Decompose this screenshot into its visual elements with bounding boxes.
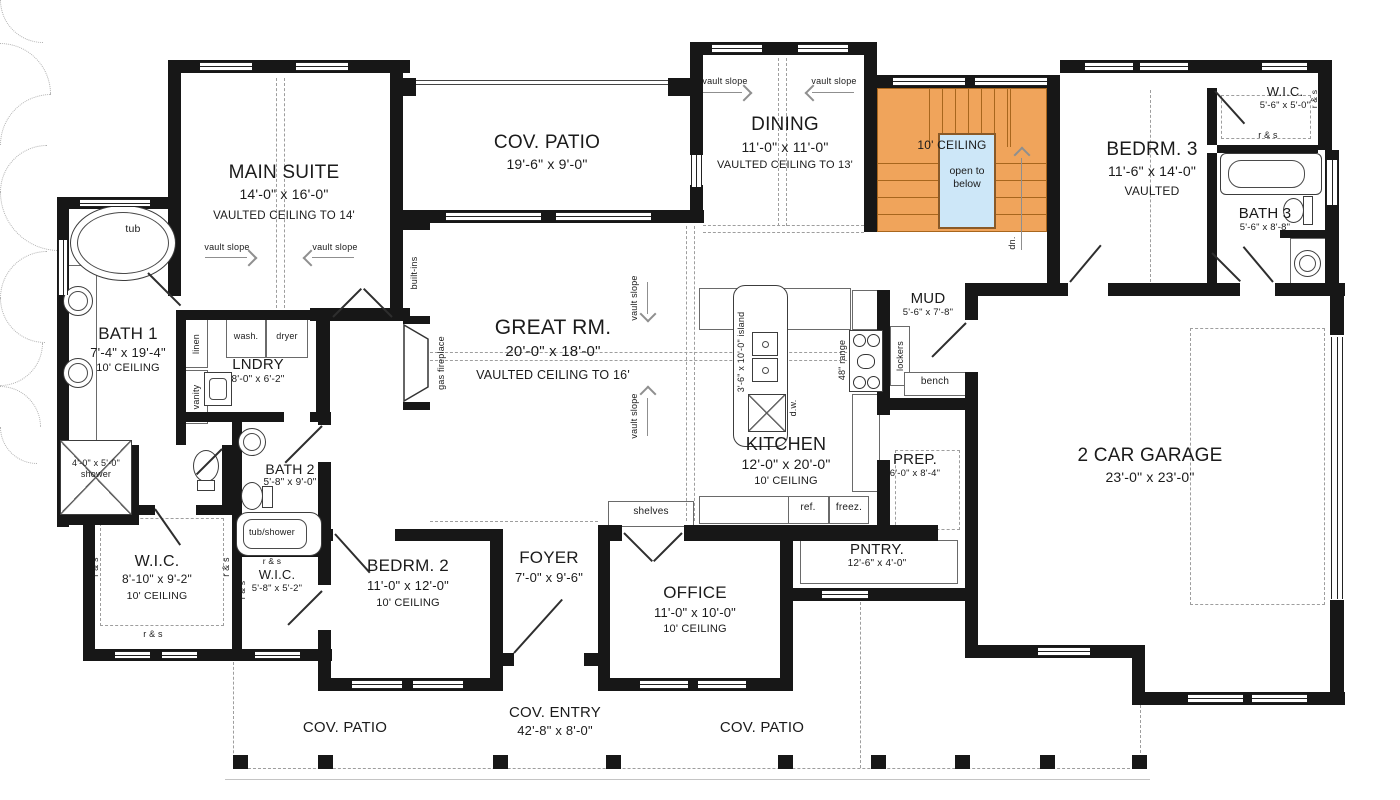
arrow-head <box>805 85 822 102</box>
dashed-line <box>415 360 867 361</box>
wall-segment <box>690 185 703 210</box>
wall-segment <box>864 75 877 232</box>
range <box>849 330 883 392</box>
vault-slope-label: vault slope <box>629 275 639 320</box>
wall-segment <box>176 412 284 422</box>
room-dims-kitchen: 12'-0" x 20'-0" <box>741 457 830 472</box>
arrow-head <box>640 306 657 323</box>
porch-post <box>668 78 690 96</box>
window <box>255 651 300 659</box>
room-label-cov-patio-br: COV. PATIO <box>720 720 804 736</box>
wall-segment <box>598 525 622 541</box>
room-dims-bath2: 5'-8" x 9'-0" <box>264 478 317 489</box>
lockers-label: lockers <box>895 341 905 371</box>
dryer-label: dryer <box>276 332 298 342</box>
arrow-line <box>647 398 648 436</box>
room-dims-pntry: 12'-6" x 4'-0" <box>848 559 907 570</box>
room-note-kitchen: 10' CEILING <box>754 476 818 488</box>
wall-segment <box>780 541 793 678</box>
porch-post <box>871 755 886 769</box>
window <box>446 212 541 221</box>
room-dims-bedrm3: 11'-6" x 14'-0" <box>1108 164 1196 179</box>
wall-segment <box>598 541 610 678</box>
dashed-line <box>233 768 1140 769</box>
room-label-wic3: W.I.C. <box>1267 85 1304 99</box>
gas-fireplace-box <box>403 324 429 402</box>
vanity-label: vanity <box>191 385 201 410</box>
toilet-tank <box>1303 196 1313 225</box>
toilet-tank <box>197 480 215 491</box>
window <box>1038 647 1090 656</box>
door-swing-arc <box>0 94 51 145</box>
door-leaf <box>334 533 370 573</box>
door-swing-arc <box>0 298 45 343</box>
vault-slope-label: vault slope <box>312 243 357 253</box>
dashed-line <box>703 232 864 233</box>
window <box>413 680 463 689</box>
shower-label: shower <box>81 470 111 480</box>
room-dims-main-suite: 14'-0" x 16'-0" <box>239 187 328 202</box>
door-swing-arc <box>0 386 41 427</box>
window <box>162 651 197 659</box>
freez-label: freez. <box>836 503 862 514</box>
room-label-cov-patio-bl: COV. PATIO <box>303 720 387 736</box>
window <box>698 680 746 689</box>
wall-segment <box>83 525 95 661</box>
laundry-sink <box>204 372 232 406</box>
wall-segment <box>965 283 978 320</box>
cabinet-counter <box>852 394 880 492</box>
room-label-mud: MUD <box>911 291 946 307</box>
room-label-kitchen: KITCHEN <box>746 435 826 454</box>
dashed-line <box>415 352 867 353</box>
window <box>798 44 848 53</box>
window <box>1085 62 1133 71</box>
sink <box>63 358 93 388</box>
wall-segment <box>318 412 331 425</box>
window <box>115 651 150 659</box>
door-swing-arc <box>0 343 43 386</box>
stairs-ceiling-label: 10' CEILING <box>917 139 986 152</box>
porch-post <box>1040 755 1055 769</box>
wall-segment <box>196 505 232 515</box>
room-label-bedrm3: BEDRM. 3 <box>1106 140 1197 161</box>
bench-label: bench <box>921 377 949 388</box>
door-leaf <box>653 532 683 562</box>
door-leaf <box>1243 246 1274 283</box>
window <box>58 240 68 295</box>
room-dims-wic3: 5'-6" x 5'-0" <box>1260 101 1310 111</box>
cabinet-counter <box>852 290 880 330</box>
rs-label: r & s <box>221 557 231 577</box>
room-note-bath1: 10' CEILING <box>96 363 160 375</box>
porch-slab-line <box>225 779 1150 780</box>
wall-segment <box>139 505 155 515</box>
wall-segment <box>316 310 330 422</box>
room-note-wic1: 10' CEILING <box>127 591 188 602</box>
room-dims-wic1: 8'-10" x 9'-2" <box>122 573 192 586</box>
wall-segment <box>176 318 186 445</box>
door-swing-arc <box>0 145 47 192</box>
window <box>80 199 150 207</box>
window <box>296 62 348 71</box>
rs-label: r & s <box>237 581 247 599</box>
room-label-great-rm: GREAT RM. <box>495 317 612 340</box>
arrow-head <box>736 85 753 102</box>
room-note-office: 10' CEILING <box>663 624 727 636</box>
bathtub <box>70 205 176 281</box>
wall-segment <box>1330 290 1344 335</box>
room-dims-cov-entry: 42'-8" x 8'-0" <box>517 724 593 738</box>
wall-segment <box>877 460 890 525</box>
sink <box>238 428 266 456</box>
island-sink <box>752 358 778 382</box>
room-label-cov-entry: COV. ENTRY <box>509 705 601 721</box>
window <box>556 212 651 221</box>
room-dims-great-rm: 20'-0" x 18'-0" <box>505 344 600 360</box>
wall-segment <box>1318 60 1332 150</box>
window <box>640 680 688 689</box>
room-dims-bath1: 7'-4" x 19'-4" <box>90 346 166 360</box>
wall-segment <box>222 445 232 513</box>
window <box>1326 160 1338 205</box>
window <box>200 62 252 71</box>
island-label: 3'-6" x 10'-0" island <box>736 312 746 393</box>
window <box>352 680 402 689</box>
arrow-head <box>640 386 657 403</box>
window <box>1188 694 1243 703</box>
porch-post <box>955 755 970 769</box>
wall-segment <box>318 678 503 691</box>
cabinet-counter <box>699 496 789 524</box>
room-label-bedrm2: BEDRM. 2 <box>367 557 449 575</box>
rs-label: r & s <box>1258 131 1278 141</box>
vault-slope-label: vault slope <box>629 393 639 438</box>
vault-slope-label: vault slope <box>204 243 249 253</box>
door-leaf <box>623 532 653 562</box>
ref-label: ref. <box>800 503 815 514</box>
wash-label: wash. <box>234 332 259 342</box>
room-label-wic1: W.I.C. <box>135 553 180 570</box>
rs-label: r & s <box>1309 90 1319 108</box>
room-label-bath3: BATH 3 <box>1239 206 1292 222</box>
wall-segment <box>965 283 1068 296</box>
dashed-line <box>860 602 861 768</box>
wall-segment <box>690 55 703 155</box>
room-dims-bedrm2: 11'-0" x 12'-0" <box>367 579 449 593</box>
porch-post <box>394 78 416 96</box>
room-dims-lndry: 8'-0" x 6'-2" <box>232 375 285 386</box>
door-swing-arc <box>0 43 51 94</box>
wall-segment <box>395 529 503 541</box>
wall-segment <box>1047 75 1060 283</box>
porch-post <box>606 755 621 769</box>
window <box>1140 62 1188 71</box>
porch-post <box>493 755 508 769</box>
door-swing-arc <box>0 0 43 43</box>
window <box>1331 337 1343 599</box>
wall-segment <box>232 557 242 649</box>
door-leaf <box>285 425 323 463</box>
wall-segment <box>1217 145 1318 153</box>
porch-post <box>318 755 333 769</box>
built-ins-label: built-ins <box>409 257 419 290</box>
vault-slope-label: vault slope <box>811 77 856 87</box>
wall-segment <box>490 653 514 666</box>
wall-segment <box>1207 88 1217 145</box>
dashed-line <box>694 226 695 521</box>
vault-slope-label: vault slope <box>702 77 747 87</box>
room-dims-bath3: 5'-6" x 8'-8" <box>1240 223 1290 233</box>
room-label-bath1: BATH 1 <box>98 325 157 343</box>
window <box>712 44 762 53</box>
room-note-great-rm: VAULTED CEILING TO 16' <box>476 369 630 383</box>
linen-label: linen <box>191 334 201 354</box>
room-dims-office: 11'-0" x 10'-0" <box>654 606 736 620</box>
porch-post <box>1132 755 1147 769</box>
rs-label: r & s <box>143 630 163 640</box>
dashed-line <box>233 662 234 768</box>
door-swing-arc <box>0 251 47 298</box>
wall-segment <box>864 42 877 75</box>
porch-post <box>233 755 248 769</box>
wall-segment <box>684 525 938 541</box>
wall-segment <box>176 310 318 320</box>
room-dims-garage: 23'-0" x 23'-0" <box>1105 470 1194 485</box>
sink <box>1294 250 1321 277</box>
room-label-office: OFFICE <box>663 584 727 602</box>
floor-plan: open to below MAIN SUITE 14'-0" x 16'-0"… <box>0 0 1400 800</box>
dishwasher <box>748 394 786 432</box>
room-dims-mud: 5'-6" x 7'-8" <box>903 308 953 318</box>
wall-segment <box>490 529 503 691</box>
wall-segment <box>403 222 430 230</box>
room-note-bedrm2: 10' CEILING <box>376 598 440 610</box>
stairs-dn-label: dn. <box>1007 236 1017 249</box>
wall-segment <box>1108 283 1240 296</box>
room-note-bedrm3: VAULTED <box>1125 185 1180 198</box>
room-dims-dining: 11'-0" x 11'-0" <box>741 140 828 155</box>
window <box>975 77 1047 86</box>
wall-segment <box>1207 153 1217 285</box>
wall-segment <box>965 372 978 658</box>
room-label-main-suite: MAIN SUITE <box>229 163 340 184</box>
toilet-tank <box>262 486 273 508</box>
gas-fireplace-label: gas fireplace <box>436 336 446 390</box>
room-label-lndry: LNDRY <box>232 357 284 373</box>
wall-segment <box>598 678 793 691</box>
shelves-label: shelves <box>633 507 668 518</box>
room-note-dining: VAULTED CEILING TO 13' <box>717 160 853 172</box>
dashed-line <box>686 226 687 521</box>
wall-segment <box>1330 600 1344 705</box>
bathtub <box>1220 153 1322 195</box>
room-label-prep: PREP. <box>893 452 937 468</box>
room-dims-cov-patio-top: 19'-6" x 9'-0" <box>506 157 587 172</box>
door-swing-arc <box>0 427 37 464</box>
room-dims-wic2: 5'-8" x 5'-2" <box>252 584 302 594</box>
island-sink <box>752 332 778 356</box>
wall-segment <box>403 316 430 324</box>
wall-segment <box>390 60 403 315</box>
rs-label: r & s <box>90 557 100 577</box>
porch-post <box>778 755 793 769</box>
arrow-line <box>1021 158 1022 250</box>
dashed-line <box>430 521 598 522</box>
rs-label: r & s <box>263 557 281 566</box>
wall-segment <box>793 588 965 601</box>
tub-label: tub <box>125 224 140 235</box>
room-dims-foyer: 7'-0" x 9'-6" <box>515 571 583 585</box>
toilet <box>241 482 263 510</box>
window <box>1252 694 1307 703</box>
dishwasher-label: d.w. <box>788 400 798 417</box>
patio-edge-line <box>404 80 670 85</box>
wall-segment <box>403 402 430 410</box>
window <box>691 155 702 187</box>
shower-dims: 4'-0" x 5'-0" <box>72 459 120 469</box>
dashed-line <box>703 225 864 226</box>
room-label-cov-patio-top: COV. PATIO <box>494 133 600 154</box>
room-label-bath2: BATH 2 <box>265 462 314 477</box>
room-label-dining: DINING <box>751 115 819 136</box>
room-label-pntry: PNTRY. <box>850 542 904 558</box>
wall-segment <box>688 210 704 223</box>
range-label: 48" range <box>837 340 847 381</box>
room-label-wic2: W.I.C. <box>259 568 296 582</box>
room-dims-prep: 6'-0" x 8'-4" <box>890 469 940 479</box>
window <box>1262 62 1307 71</box>
room-label-foyer: FOYER <box>519 549 579 567</box>
stair-treads-left <box>878 147 939 233</box>
tub-shower-label: tub/shower <box>249 528 295 538</box>
door-leaf <box>931 322 966 357</box>
window <box>893 77 965 86</box>
wall-segment <box>168 60 181 210</box>
wall-segment <box>890 398 965 410</box>
room-label-garage: 2 CAR GARAGE <box>1078 446 1223 467</box>
room-note-main-suite: VAULTED CEILING TO 14' <box>213 210 355 222</box>
door-leaf <box>1069 245 1101 283</box>
door-leaf <box>513 599 563 654</box>
door-leaf <box>287 590 322 625</box>
door-swing-arc <box>0 192 59 251</box>
window <box>822 590 868 599</box>
